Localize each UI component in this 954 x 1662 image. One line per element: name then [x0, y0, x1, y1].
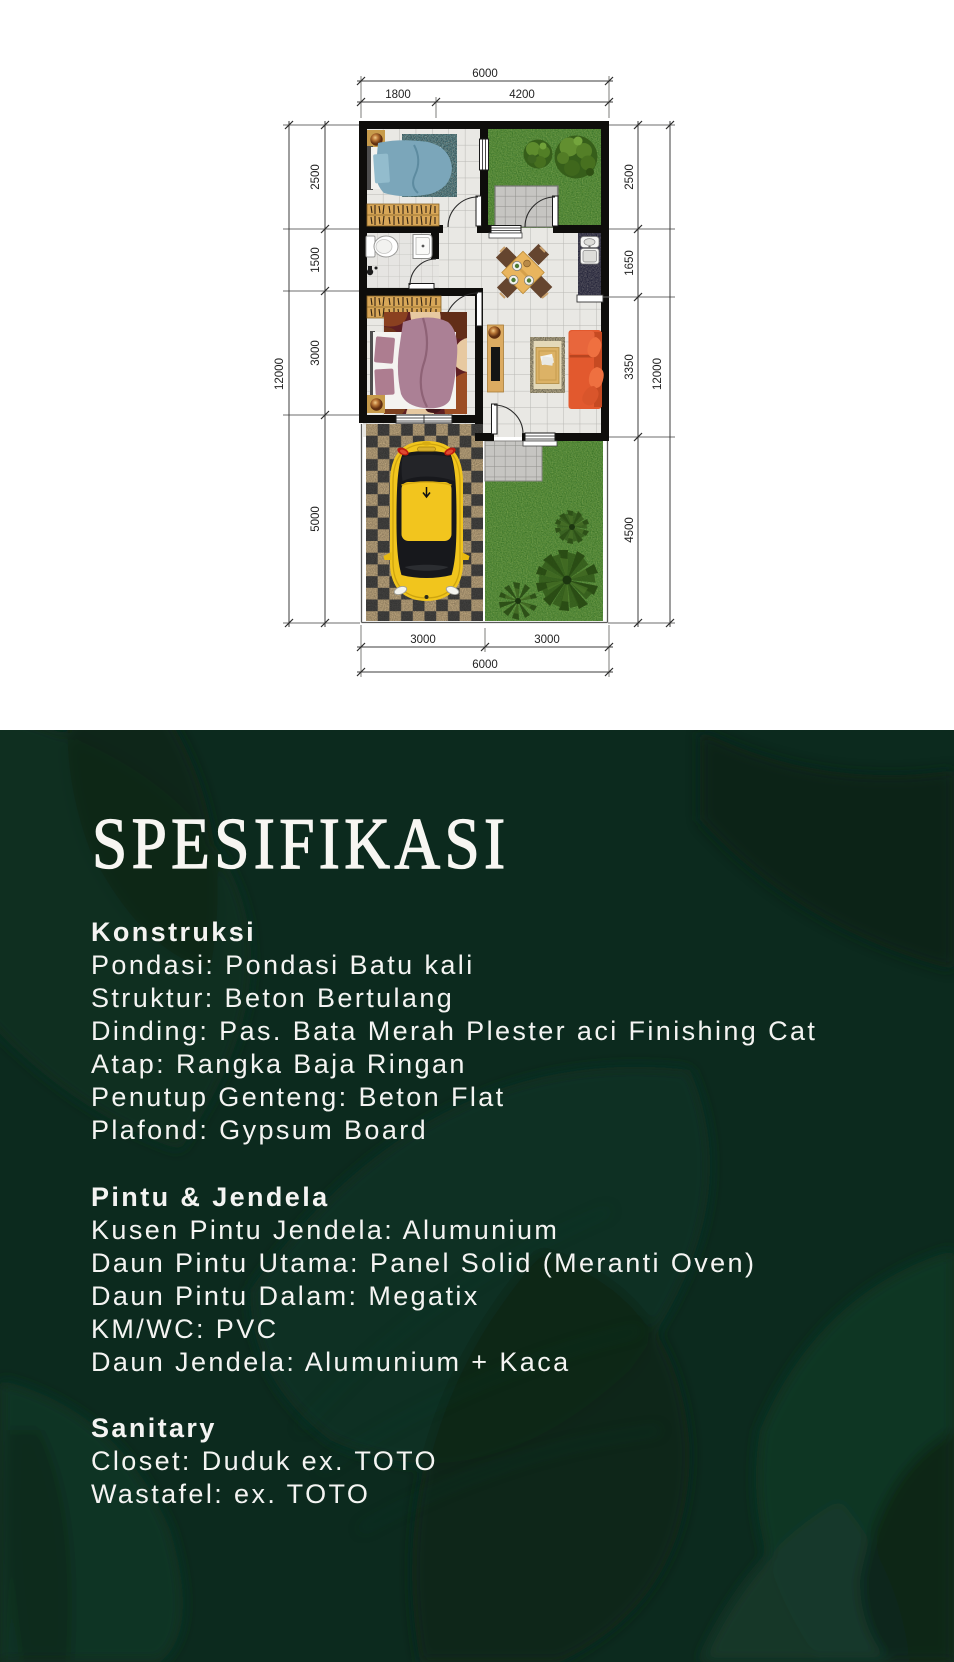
svg-text:1800: 1800: [385, 89, 411, 101]
svg-text:1650: 1650: [624, 250, 636, 276]
svg-text:4200: 4200: [509, 89, 535, 101]
svg-text:6000: 6000: [472, 659, 498, 671]
svg-text:12000: 12000: [652, 358, 664, 390]
svg-text:3350: 3350: [624, 354, 636, 380]
svg-text:3000: 3000: [410, 634, 436, 646]
svg-text:6000: 6000: [472, 68, 498, 80]
svg-text:2500: 2500: [310, 164, 322, 190]
svg-text:5000: 5000: [310, 506, 322, 532]
svg-text:2500: 2500: [624, 164, 636, 190]
svg-text:4500: 4500: [624, 517, 636, 543]
svg-text:1500: 1500: [310, 247, 322, 273]
svg-text:3000: 3000: [310, 340, 322, 366]
svg-text:3000: 3000: [534, 634, 560, 646]
svg-text:12000: 12000: [274, 358, 286, 390]
